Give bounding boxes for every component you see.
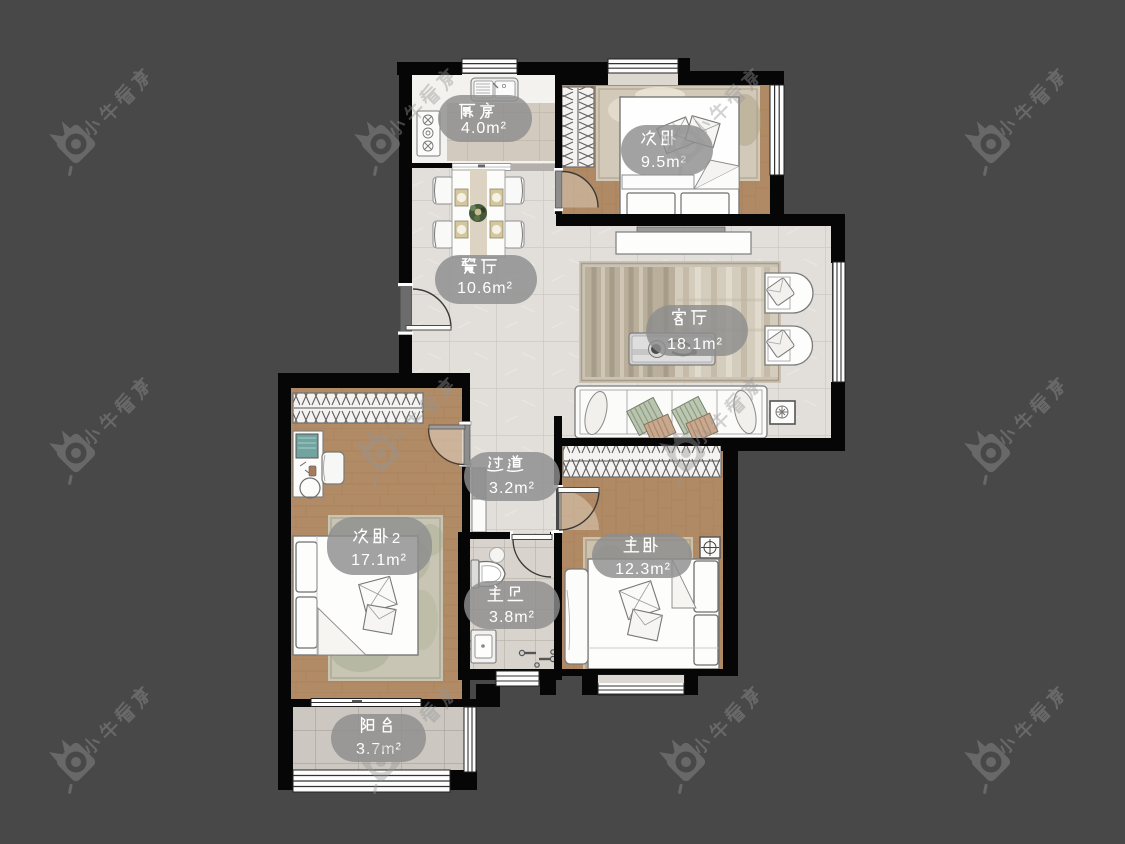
svg-text:2: 2	[392, 530, 400, 547]
svg-text:3.2m²: 3.2m²	[489, 480, 535, 497]
svg-text:17.1m²: 17.1m²	[351, 552, 407, 569]
svg-text:12.3m²: 12.3m²	[615, 561, 671, 578]
svg-text:10.6m²: 10.6m²	[457, 280, 513, 297]
svg-text:4.0m²: 4.0m²	[461, 120, 507, 137]
svg-text:18.1m²: 18.1m²	[667, 336, 723, 353]
svg-text:3.8m²: 3.8m²	[489, 609, 535, 626]
